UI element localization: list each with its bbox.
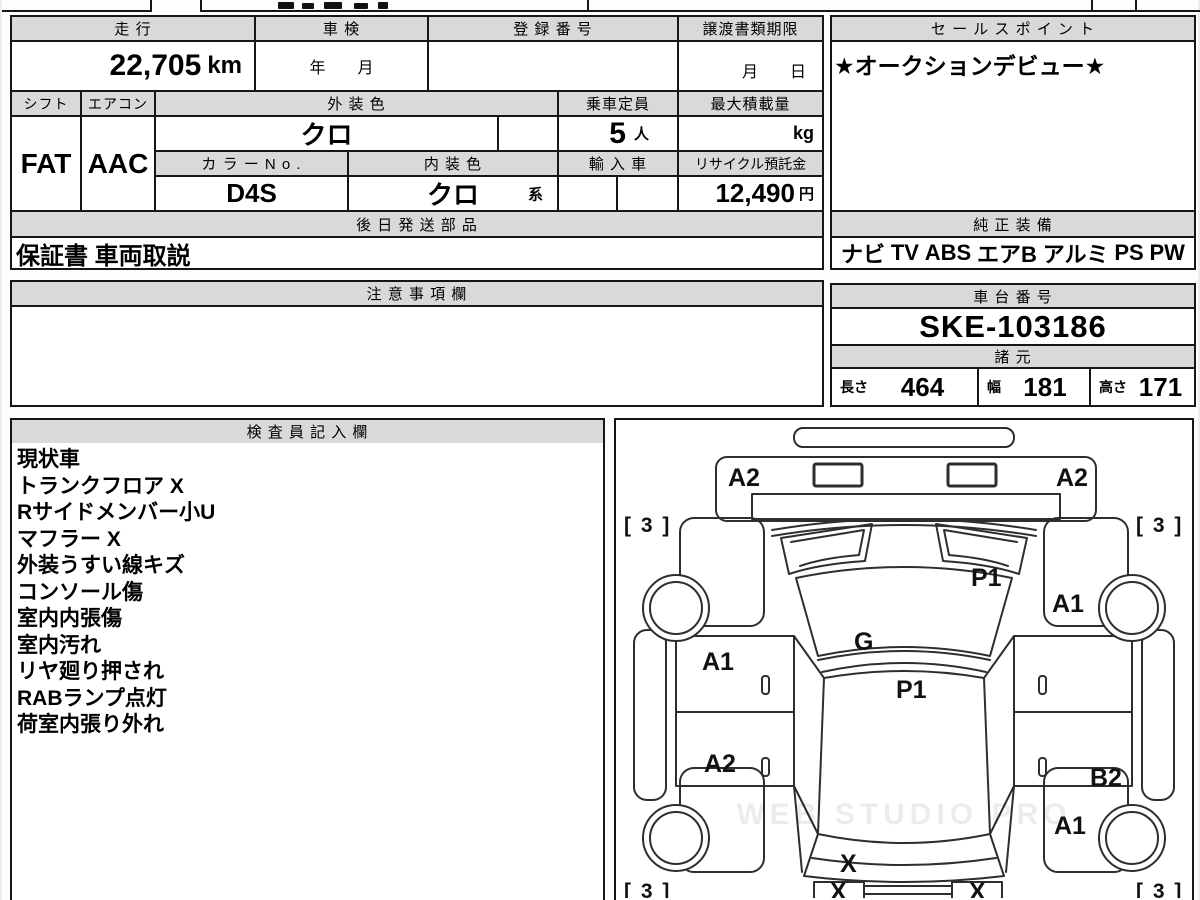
aircon-value: AAC xyxy=(80,115,156,212)
damage-code-label: X xyxy=(969,878,986,898)
sales-point-value: ★オークションデビュー★ xyxy=(830,40,1196,212)
car-topview-drawing: WEB STUDIO PRO A2A2[ 3 ][ 3 ]P1A1GA1P1A2… xyxy=(616,420,1192,898)
mileage-unit: km xyxy=(207,52,242,80)
shift-header: シフト xyxy=(10,90,82,117)
cutoff-text xyxy=(378,2,388,9)
damage-code-label: A1 xyxy=(1054,812,1086,840)
damage-code-label: P1 xyxy=(896,676,927,704)
damage-code-label: B2 xyxy=(1090,764,1122,792)
auction-sheet: 走 行 車 検 登 録 番 号 譲渡書類期限 22,705 km 年 月 月 日… xyxy=(2,0,1198,900)
shift-value: FAT xyxy=(10,115,82,212)
color-no-value: D4S xyxy=(154,175,349,212)
recycle-fee-number: 12,490 xyxy=(715,178,795,209)
max-load-header: 最大積載量 xyxy=(677,90,824,117)
exterior-color-header: 外 装 色 xyxy=(154,90,559,117)
capacity-number: 5 xyxy=(609,117,626,151)
divider xyxy=(1135,0,1137,12)
exterior-color-value: クロ xyxy=(154,115,499,152)
registration-value xyxy=(427,40,679,92)
spec-width-label: 幅 xyxy=(987,377,1001,397)
spec-length-value: 464 xyxy=(868,372,977,403)
equipment-list: ナビTVABSエアBアルミPSPW xyxy=(830,236,1196,270)
sales-point-header: セ ー ル ス ポ イ ン ト xyxy=(830,15,1196,42)
color-no-header: カ ラ ー N o . xyxy=(154,150,349,177)
divider xyxy=(1091,0,1093,12)
mileage-header: 走 行 xyxy=(10,15,256,42)
transfer-docs-header: 譲渡書類期限 xyxy=(677,15,824,42)
interior-color-header: 内 装 色 xyxy=(347,150,559,177)
inspector-note-line: 荷室内張り外れ xyxy=(17,712,603,739)
later-parts-value: 保証書 車両取説 xyxy=(10,236,824,270)
inspector-note-line: コンソール傷 xyxy=(17,580,603,607)
spec-height-label: 高さ xyxy=(1099,377,1127,397)
inspector-note-line: 室内内張傷 xyxy=(17,606,603,633)
damage-code-label: P1 xyxy=(971,564,1002,592)
spec-length: 長さ 464 xyxy=(830,367,979,407)
recycle-fee-value: 12,490 円 xyxy=(677,175,824,212)
specs-header: 諸 元 xyxy=(830,344,1196,369)
inspector-note-line: RABランプ点灯 xyxy=(17,686,603,713)
equipment-item: TV xyxy=(891,240,919,266)
import-car-cell-1 xyxy=(557,175,618,212)
equipment-item: エアB xyxy=(977,237,1037,269)
max-load-value: kg xyxy=(677,115,824,152)
divider xyxy=(587,0,589,12)
divider xyxy=(2,10,150,12)
cutoff-text xyxy=(354,3,368,9)
car-damage-diagram: WEB STUDIO PRO A2A2[ 3 ][ 3 ]P1A1GA1P1A2… xyxy=(614,418,1194,900)
damage-code-label: G xyxy=(854,628,873,656)
watermark-text: WEB STUDIO PRO xyxy=(736,798,1071,831)
divider xyxy=(1093,10,1200,12)
damage-code-label: A1 xyxy=(1052,590,1084,618)
inspector-note-line: 現状車 xyxy=(17,447,603,474)
damage-code-label: [ 3 ] xyxy=(1136,880,1183,898)
damage-code-label: [ 3 ] xyxy=(1136,514,1183,537)
inspector-note-line: 室内汚れ xyxy=(17,633,603,660)
damage-code-label: X xyxy=(830,878,847,898)
cutoff-text xyxy=(302,3,314,9)
interior-color-value: クロ 系 xyxy=(347,175,559,212)
max-load-unit: kg xyxy=(793,123,814,144)
divider xyxy=(200,10,1092,12)
cautions-value xyxy=(10,305,824,407)
interior-color-text: クロ xyxy=(427,175,479,212)
damage-code-label: X xyxy=(840,850,857,878)
cutoff-text xyxy=(278,2,294,9)
spec-width-value: 181 xyxy=(1001,372,1089,403)
recycle-fee-unit: 円 xyxy=(799,183,814,204)
damage-code-label: A2 xyxy=(728,464,760,492)
divider xyxy=(200,0,202,12)
aircon-header: エアコン xyxy=(80,90,156,117)
equipment-header: 純 正 装 備 xyxy=(830,210,1196,238)
inspector-note-line: Rサイドメンバー小U xyxy=(17,500,603,527)
inspector-note-line: リヤ廻り押され xyxy=(17,659,603,686)
damage-code-label: A2 xyxy=(1056,464,1088,492)
mileage-value: 22,705 km xyxy=(10,40,256,92)
mileage-number: 22,705 xyxy=(110,49,202,83)
import-car-cell-2 xyxy=(616,175,679,212)
inspector-note-line: 外装うすい線キズ xyxy=(17,553,603,580)
capacity-unit: 人 xyxy=(634,123,649,144)
recycle-fee-header: リサイクル預託金 xyxy=(677,150,824,177)
capacity-value: 5 人 xyxy=(557,115,679,152)
interior-color-suffix: 系 xyxy=(528,183,543,204)
equipment-item: ABS xyxy=(925,240,971,266)
later-parts-header: 後 日 発 送 部 品 xyxy=(10,210,824,238)
equipment-item: ナビ xyxy=(841,237,885,269)
inspector-note-line: マフラー X xyxy=(17,527,603,554)
inspector-notes: 現状車トランクフロア XRサイドメンバー小Uマフラー X外装うすい線キズコンソー… xyxy=(10,443,605,900)
shaken-value: 年 月 xyxy=(254,40,429,92)
capacity-header: 乗車定員 xyxy=(557,90,679,117)
spec-width: 幅 181 xyxy=(977,367,1091,407)
import-car-header: 輸 入 車 xyxy=(557,150,679,177)
inspector-header: 検 査 員 記 入 欄 xyxy=(10,418,605,445)
registration-header: 登 録 番 号 xyxy=(427,15,679,42)
spec-height: 高さ 171 xyxy=(1089,367,1196,407)
equipment-item: アルミ xyxy=(1043,237,1109,269)
damage-code-label: [ 3 ] xyxy=(624,880,671,898)
damage-code-label: A1 xyxy=(702,648,734,676)
equipment-item: PS xyxy=(1114,240,1143,266)
chassis-value: SKE-103186 xyxy=(830,307,1196,346)
chassis-header: 車 台 番 号 xyxy=(830,283,1196,309)
inspector-note-line: トランクフロア X xyxy=(17,474,603,501)
transfer-docs-value: 月 日 xyxy=(677,40,824,92)
divider xyxy=(150,0,152,12)
spec-length-label: 長さ xyxy=(840,377,868,397)
cautions-header: 注 意 事 項 欄 xyxy=(10,280,824,307)
damage-code-label: A2 xyxy=(704,750,736,778)
cutoff-text xyxy=(324,2,342,9)
exterior-color-extra-cell xyxy=(497,115,559,152)
spec-height-value: 171 xyxy=(1127,372,1194,403)
damage-code-label: [ 3 ] xyxy=(624,514,671,537)
equipment-item: PW xyxy=(1150,240,1185,266)
shaken-header: 車 検 xyxy=(254,15,429,42)
